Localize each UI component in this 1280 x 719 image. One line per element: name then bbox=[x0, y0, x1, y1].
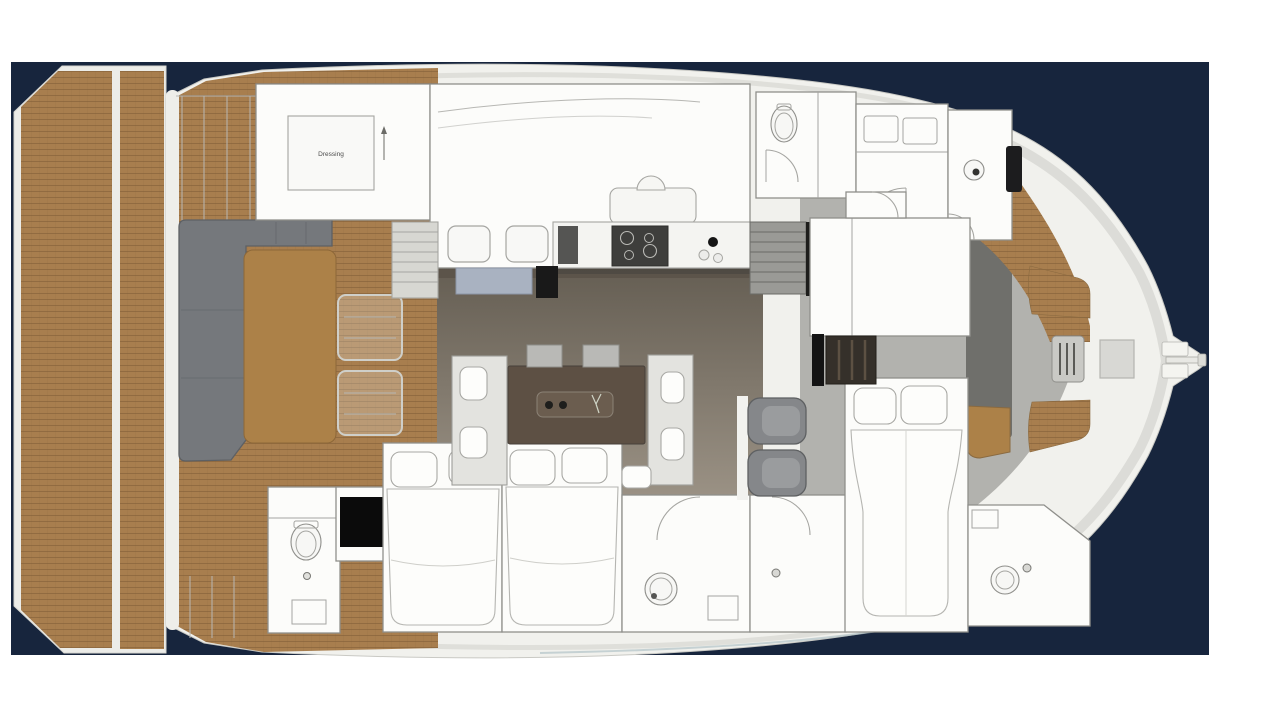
settee-seat bbox=[448, 226, 490, 262]
drain bbox=[772, 569, 780, 577]
black-cabinet bbox=[536, 266, 558, 298]
deck-chair bbox=[338, 295, 402, 360]
counter-shadow bbox=[555, 268, 750, 274]
helm-seat-cushion bbox=[762, 458, 800, 488]
bow-cabin-desk bbox=[966, 406, 1010, 458]
galley-console bbox=[610, 188, 696, 224]
anchor-pad-bottom bbox=[1162, 364, 1188, 378]
dining-chair bbox=[583, 345, 619, 367]
mid-landing bbox=[750, 495, 846, 632]
double-bed bbox=[387, 489, 499, 625]
sink-bowl bbox=[699, 250, 709, 260]
dark-panel bbox=[812, 334, 824, 386]
yacht-deck-plan: Dressing bbox=[0, 0, 1280, 719]
pillow bbox=[562, 448, 607, 483]
bow-hatch bbox=[1100, 340, 1134, 378]
floorplan-canvas: Dressing bbox=[0, 0, 1280, 719]
galley-block bbox=[430, 84, 750, 268]
deck-chair bbox=[338, 371, 402, 435]
landing-room bbox=[750, 495, 846, 632]
aft-cabin-2 bbox=[502, 443, 622, 632]
swim-platform-teak-outer bbox=[21, 71, 112, 648]
port-stairs bbox=[392, 222, 438, 298]
wardrobe-top bbox=[846, 192, 906, 218]
pillow bbox=[391, 452, 437, 487]
bench-cushion bbox=[661, 372, 684, 403]
bow-head bbox=[756, 92, 856, 198]
mid-head bbox=[622, 495, 750, 632]
aft-head bbox=[268, 487, 340, 633]
transom-step bbox=[166, 90, 179, 630]
pillow bbox=[510, 450, 555, 485]
drain bbox=[304, 573, 311, 580]
cockpit-table bbox=[244, 250, 336, 443]
dining-chair bbox=[527, 345, 562, 367]
round-sink bbox=[991, 566, 1019, 594]
toilet bbox=[291, 524, 321, 560]
wardrobe bbox=[810, 218, 970, 336]
helm-floor-strip bbox=[737, 396, 748, 500]
anchor-pad-top bbox=[1162, 342, 1188, 356]
table-bowl bbox=[545, 401, 553, 409]
forward-cabin bbox=[845, 378, 968, 632]
bow-head-room bbox=[756, 92, 856, 198]
cooktop bbox=[612, 226, 668, 266]
table-bowl bbox=[559, 401, 567, 409]
dressing-block: Dressing bbox=[256, 84, 430, 220]
pillow bbox=[854, 388, 896, 424]
sink-bowl bbox=[714, 254, 723, 263]
double-bed bbox=[506, 487, 618, 625]
pillow bbox=[901, 386, 947, 424]
helm-seat-cushion bbox=[762, 406, 800, 436]
drain bbox=[1023, 564, 1031, 572]
floor-cushion bbox=[622, 466, 651, 488]
nav-bench-blue bbox=[456, 268, 532, 294]
bench-cushion bbox=[460, 367, 487, 400]
galley-appliance bbox=[558, 226, 578, 264]
bench-cushion bbox=[460, 427, 487, 458]
faucet bbox=[708, 237, 718, 247]
bench-cushion bbox=[661, 428, 684, 460]
faucet-dot bbox=[651, 593, 657, 599]
settee-seat bbox=[506, 226, 548, 262]
dressing-label: Dressing bbox=[318, 151, 344, 158]
hull-window bbox=[1006, 146, 1022, 192]
bow-vent-grille bbox=[1052, 336, 1084, 382]
swim-platform-teak-inner bbox=[120, 71, 164, 649]
faucet-dot bbox=[973, 169, 980, 176]
mid-head-room bbox=[622, 495, 750, 632]
swim-platform bbox=[14, 66, 166, 653]
companionway-dark bbox=[812, 334, 876, 386]
anchor-knob bbox=[1198, 354, 1206, 366]
